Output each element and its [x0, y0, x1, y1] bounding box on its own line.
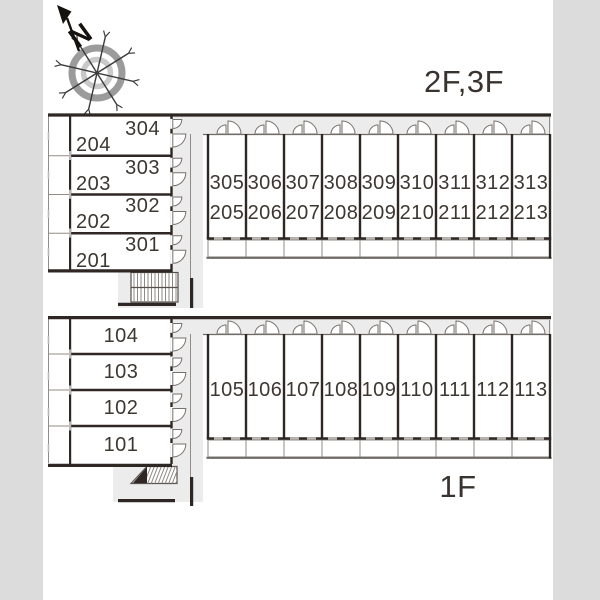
room-106-label: 106	[246, 380, 284, 401]
room-101-label: 101	[70, 435, 172, 456]
room-104-label: 104	[70, 326, 172, 347]
upper-floor-label: 2F,3F	[414, 65, 514, 99]
room-213-label: 213	[512, 203, 550, 224]
room-212-label: 212	[474, 203, 512, 224]
room-206-label: 206	[246, 203, 284, 224]
room-113-label: 113	[512, 380, 550, 401]
room-208-label: 208	[322, 203, 360, 224]
room-311-label: 311	[436, 173, 474, 194]
room-310-label: 310	[398, 173, 436, 194]
room-107-label: 107	[284, 380, 322, 401]
room-209-label: 209	[360, 203, 398, 224]
room-207-label: 207	[284, 203, 322, 224]
room-203-label: 203	[76, 174, 166, 195]
room-109-label: 109	[360, 380, 398, 401]
room-201-label: 201	[76, 251, 166, 272]
room-312-label: 312	[474, 173, 512, 194]
room-204-label: 204	[76, 135, 166, 156]
room-102-label: 102	[70, 398, 172, 419]
room-202-label: 202	[76, 212, 166, 233]
room-112-label: 112	[474, 380, 512, 401]
lower-corridor	[172, 319, 551, 502]
room-211-label: 211	[436, 203, 474, 224]
room-210-label: 210	[398, 203, 436, 224]
floorplan-page: N	[0, 0, 600, 600]
room-111-label: 111	[436, 380, 474, 401]
lower-floor-label: 1F	[428, 470, 488, 504]
room-306-label: 306	[246, 173, 284, 194]
upper-staircase-icon	[131, 273, 178, 303]
room-309-label: 309	[360, 173, 398, 194]
room-313-label: 313	[512, 173, 550, 194]
room-307-label: 307	[284, 173, 322, 194]
compass-icon: N	[53, 5, 142, 117]
room-305-label: 305	[208, 173, 246, 194]
room-308-label: 308	[322, 173, 360, 194]
room-205-label: 205	[208, 203, 246, 224]
room-110-label: 110	[398, 380, 436, 401]
room-108-label: 108	[322, 380, 360, 401]
room-103-label: 103	[70, 362, 172, 383]
room-105-label: 105	[208, 380, 246, 401]
